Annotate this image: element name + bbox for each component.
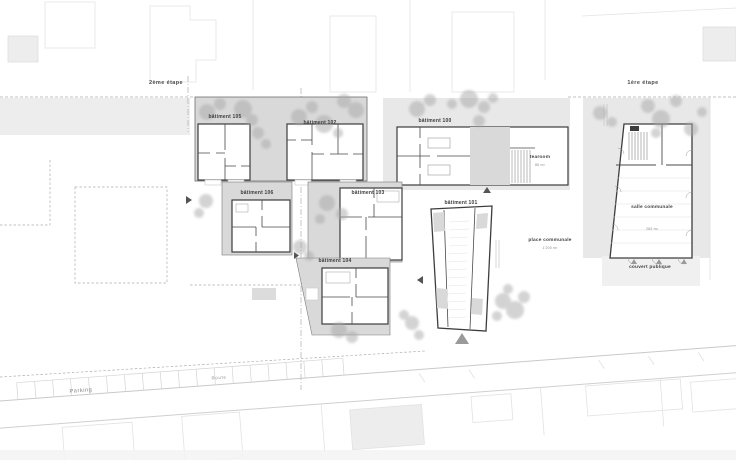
stage-label-first: 1ère étape [618,80,668,86]
place-communale-label: place communale [518,238,582,244]
context-buildings-top [8,0,736,92]
tearoom-label: tearoom [512,155,568,161]
building-label-104: bâtiment 104 [307,258,363,264]
building-101 [431,206,499,331]
couvert-publique-label: couvert publique [614,265,686,271]
north-triangle [455,333,469,344]
tearoom-area: 86 m² [512,162,568,168]
site-plan-canvas: 2ème étape 1ère étape bâtiment 105 bâtim… [0,0,736,460]
road [0,327,736,460]
building-label-103: bâtiment 103 [340,190,396,196]
salle-communale-label: salle communale [618,205,686,211]
bottom-strip [0,450,736,460]
building-label-106: bâtiment 106 [229,190,285,196]
place-communale-area: 1'200 m² [518,245,582,251]
building-label-100: bâtiment 100 [407,118,463,124]
salle-communale-area: 263 m² [618,226,686,232]
building-label-101: bâtiment 101 [433,200,489,206]
stage-label-second: 2ème étape [141,80,191,86]
building-label-105: bâtiment 105 [197,114,253,120]
building-label-102: bâtiment 102 [292,120,348,126]
context-buildings-bottom [62,373,736,460]
building-cluster-105-102 [195,97,367,185]
